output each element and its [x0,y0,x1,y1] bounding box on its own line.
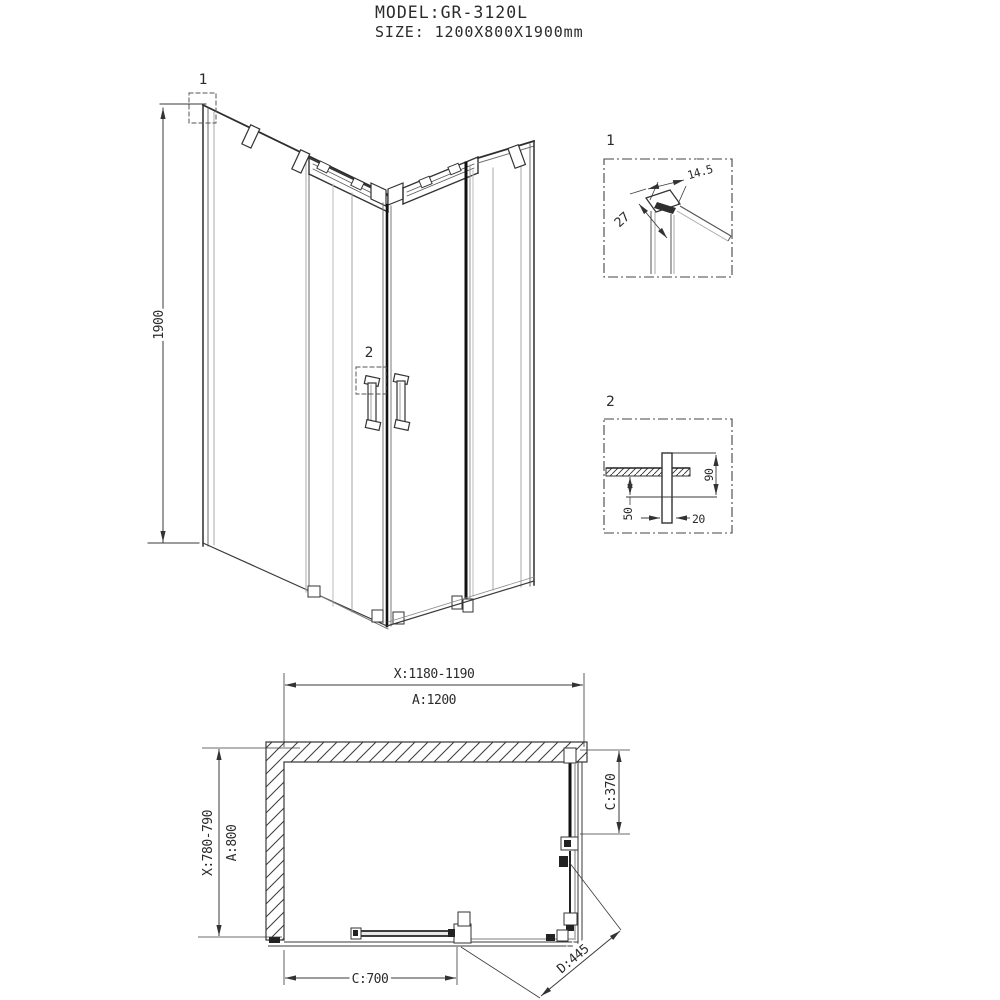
handle-bar [397,381,405,425]
handle-width-dim-label: 20 [692,512,705,526]
width-adjust-dim-label: X:1180-1190 [394,667,475,682]
wall-bracket [508,145,526,168]
height-dim-label: 1900 [152,310,167,339]
callout-2-label: 2 [365,345,374,361]
detail-view-1: 1 14.5 27 [604,133,732,277]
iso-left-door [308,184,404,629]
wall-profile-block [564,748,576,763]
corner-guide-block [557,930,568,941]
handle-height-dim-label: 90 [702,468,716,481]
handle-bar [368,383,376,425]
plan-bottom-door [351,912,575,943]
shower-enclosure-technical-drawing: MODEL:GR-3120L SIZE: 1200X800X1900mm 190… [0,0,1000,1000]
plan-right-side [559,748,582,946]
detail-view-2: 2 90 50 20 [604,394,732,533]
handle-cap [365,420,380,431]
detail-2-label: 2 [606,394,615,410]
roller-block [448,163,461,175]
corner-joint-block [564,913,577,925]
depth-nominal-dim-label: A:800 [225,825,240,862]
detail-1-profile-section [646,190,731,274]
diagonal-entry-dim-label: D:445 [554,942,592,977]
width-nominal-dim-label: A:1200 [412,693,456,708]
iso-right-door [452,163,473,612]
size-label: SIZE: 1200X800X1900mm [375,23,584,41]
title-block: MODEL:GR-3120L SIZE: 1200X800X1900mm [375,3,584,41]
isometric-view: 1900 [148,72,534,629]
plan-walls [266,742,587,940]
profile-depth-dim-label: 27 [612,210,633,231]
dim-plan-depth: X:780-790 A:800 [198,748,300,937]
dim-height-1900: 1900 [148,104,206,543]
door-end-block [454,924,471,943]
dim-plan-width: X:1180-1190 A:1200 [284,667,584,747]
door-guide-block [308,586,320,597]
wall-bracket [292,150,310,173]
handle-cap [394,420,409,431]
side-panel-dim-label: C:370 [604,774,619,811]
track-end-block [269,937,280,943]
profile-width-dim-label: 14.5 [686,162,715,183]
handle-offset-dim-label: 50 [621,507,635,520]
model-label: MODEL:GR-3120L [375,3,528,22]
handle-profile-section [662,453,672,523]
door-guide-block [372,610,383,622]
depth-adjust-dim-label: X:780-790 [201,810,216,876]
glass-edge-section [606,468,690,476]
front-door-dim-label: C:700 [352,972,389,987]
front-sliding-door [358,931,456,936]
iso-right-fixed-panel [387,141,534,626]
iso-wall-brackets [242,125,526,173]
dim-diagonal-entry: D:445 [461,862,621,998]
corner-guide-block [546,934,555,941]
plan-view: X:1180-1190 A:1200 X:780-790 A:800 C:370… [198,667,630,998]
dim-front-door: C:700 [284,947,457,987]
detail-1-label: 1 [606,133,615,149]
side-door-handle [559,856,568,867]
drawing-canvas: MODEL:GR-3120L SIZE: 1200X800X1900mm 190… [0,0,1000,1000]
wall-bracket [242,125,260,148]
door-knob-block [458,912,470,926]
callout-1-label: 1 [199,72,208,88]
door-guide-block [452,596,462,609]
